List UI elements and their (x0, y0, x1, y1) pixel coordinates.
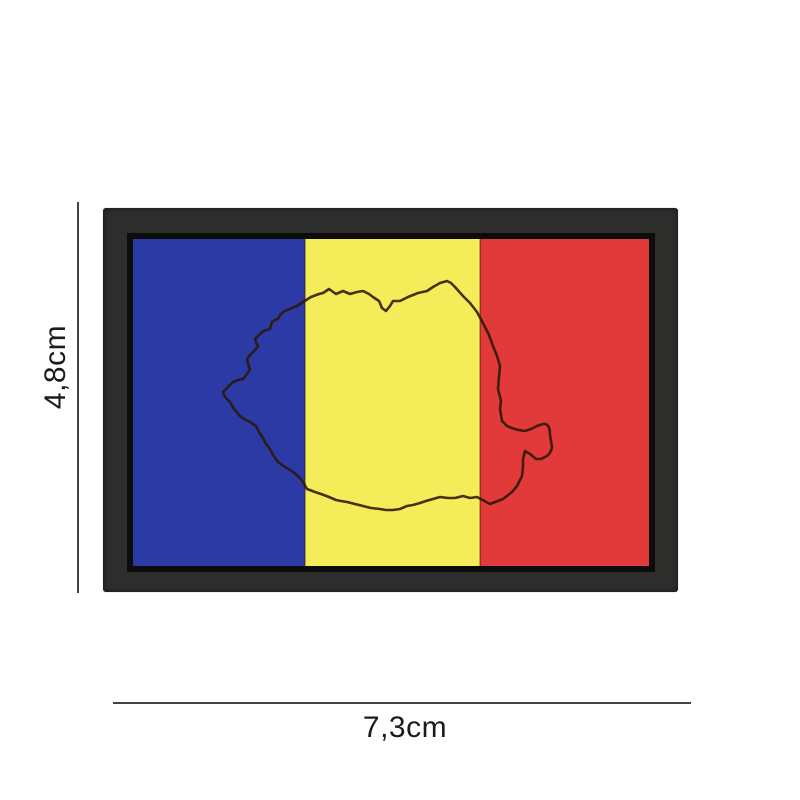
flag-svg (133, 239, 649, 566)
height-dimension-label: 4,8cm (41, 325, 71, 409)
stripe-red (480, 239, 649, 566)
flag-field (127, 233, 655, 572)
stripe-seam-right (479, 239, 481, 566)
height-dimension-line (77, 202, 79, 593)
product-image: 4,8cm 7,3cm (0, 0, 800, 800)
flag-patch (103, 208, 678, 592)
width-dimension-line (113, 702, 691, 704)
stripe-yellow (305, 239, 480, 566)
width-dimension-label: 7,3cm (363, 713, 447, 743)
stripe-seam-left (304, 239, 306, 566)
stripe-blue (133, 239, 305, 566)
